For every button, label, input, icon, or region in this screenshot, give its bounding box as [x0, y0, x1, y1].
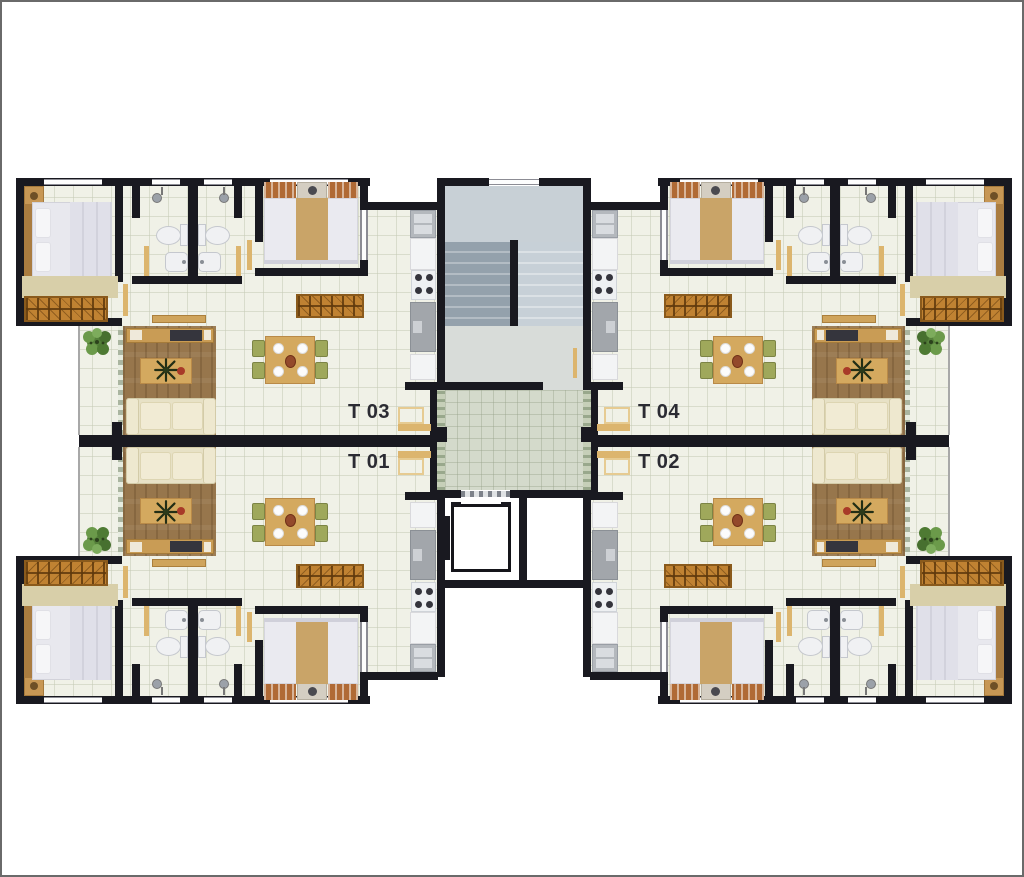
table-plant-icon — [849, 357, 875, 383]
second-bed-footline — [670, 260, 764, 264]
master-bedroom-wall-right — [905, 178, 913, 282]
unit-label-t04: T 04 — [638, 401, 680, 424]
bathroom-wall-right — [234, 664, 242, 704]
window-bathroom-left — [848, 697, 876, 703]
table-plant-icon — [153, 499, 179, 525]
pillow — [35, 242, 51, 272]
second-bedroom-wall-bottom — [255, 606, 367, 614]
bedroom-rug — [22, 276, 118, 298]
service-shaft — [527, 498, 583, 580]
bathroom-wall-bottom — [132, 598, 242, 606]
lamp — [30, 192, 38, 200]
dining-chair — [763, 503, 776, 520]
kitchen-counter — [410, 502, 436, 528]
exterior-notch-top — [366, 678, 442, 708]
faucet — [824, 260, 828, 264]
exterior-notch-left — [949, 325, 1014, 441]
second-bedroom-wall-left — [255, 640, 263, 704]
master-bedroom-door — [123, 284, 128, 316]
window-master-bedroom — [44, 179, 102, 185]
bathroom-wall-left — [132, 178, 140, 218]
plate — [744, 528, 755, 539]
bathroom-wall-bottom — [132, 276, 242, 284]
bathroom-left-door — [144, 246, 149, 276]
outer-wall-left — [1004, 178, 1012, 326]
second-bedroom-wall-bottom — [661, 606, 773, 614]
window-master-bedroom — [926, 179, 984, 185]
stair-flight-down — [518, 242, 583, 326]
dining-chair — [763, 525, 776, 542]
lamp — [990, 192, 998, 200]
faucet — [200, 618, 204, 622]
second-bedroom-door — [247, 240, 252, 270]
unit-label-t02: T 02 — [638, 451, 680, 474]
master-wardrobe — [24, 296, 108, 322]
unit-label-t03: T 03 — [348, 401, 390, 424]
kitchen-counter — [592, 612, 618, 644]
burner — [606, 588, 613, 595]
plate — [273, 528, 284, 539]
decor-item — [177, 507, 185, 515]
toilet-bowl — [205, 226, 230, 245]
sofa-arm — [126, 398, 139, 435]
sink-basin — [414, 659, 432, 668]
second-bed-runner — [700, 198, 732, 264]
floor-plan-image: T 03 T 01 T 04 T 02 — [0, 0, 1024, 877]
sink-basin — [596, 659, 614, 668]
rack-item — [204, 542, 211, 552]
exterior-notch-left — [14, 441, 79, 557]
toilet-tank — [180, 224, 188, 246]
shower-arm — [803, 187, 805, 195]
plate — [297, 528, 308, 539]
burner — [606, 601, 613, 608]
second-bedroom-wall-right-bottom — [360, 260, 368, 276]
second-bed-runner — [700, 618, 732, 684]
kitchen-wall-bottom — [405, 492, 438, 500]
kitchen-counter — [592, 502, 618, 528]
kitchen-counter — [410, 354, 436, 380]
party-wall-stub-right — [581, 427, 591, 442]
sofa-arm — [889, 398, 902, 435]
exterior-notch-top — [366, 174, 442, 204]
entry-door — [597, 424, 630, 431]
stair-center-wall — [510, 240, 518, 328]
window-second-bedroom-side — [660, 210, 668, 260]
shower-arm — [223, 687, 225, 695]
toilet-bowl — [847, 637, 872, 656]
toilet-tank — [822, 636, 830, 658]
dining-chair — [700, 525, 713, 542]
sofa-arm — [812, 447, 825, 484]
shower-arm — [803, 687, 805, 695]
bathroom-left-door — [879, 246, 884, 276]
elevator-car-door-tick — [451, 502, 461, 506]
window-second-bedroom-side — [360, 210, 368, 260]
second-bed-footline — [670, 618, 764, 622]
centerpiece-bowl — [732, 355, 743, 368]
burner — [606, 274, 613, 281]
pillow — [977, 242, 993, 272]
plate — [720, 528, 731, 539]
lamp — [990, 682, 998, 690]
bathroom-wall-right — [786, 664, 794, 704]
entry-door-frame — [604, 458, 630, 475]
table-plant-icon — [153, 357, 179, 383]
plate — [273, 366, 284, 377]
shaft-divider-wall — [519, 498, 527, 580]
elevator-wall-top-left — [437, 490, 461, 498]
burner — [606, 287, 613, 294]
bathroom-divider-wall — [188, 178, 198, 278]
bathroom-wall-right — [234, 178, 242, 218]
stair-wall-right — [583, 178, 591, 390]
balcony-sliding-door — [905, 447, 910, 557]
bathroom-wall-left — [888, 664, 896, 704]
exterior-notch-top — [586, 174, 662, 204]
party-wall-balcony-stub — [906, 422, 916, 435]
headboard-cushion — [328, 182, 358, 198]
balcony-plant-icon — [914, 523, 948, 557]
refrigerator-handle — [606, 549, 615, 561]
window-second-bedroom-side — [660, 622, 668, 672]
plate — [720, 505, 731, 516]
entry-door — [398, 451, 431, 458]
second-bedroom-wall-right-top — [660, 178, 668, 210]
bathroom-left-door — [879, 606, 884, 636]
master-bed-duvet — [916, 202, 958, 280]
master-bedroom-door — [900, 566, 905, 598]
second-bedroom-wall-bottom — [255, 268, 367, 276]
elevator-car-door-tick — [501, 502, 511, 506]
shower-arm — [865, 187, 867, 195]
hall-wardrobe — [296, 294, 364, 318]
lamp — [711, 687, 720, 696]
kitchen-counter — [410, 612, 436, 644]
headboard-cushion — [732, 182, 764, 198]
sofa-cushion — [140, 452, 171, 480]
burner — [595, 601, 602, 608]
console-table — [822, 559, 876, 567]
toilet-bowl — [205, 637, 230, 656]
elevator-wall-bottom — [437, 580, 591, 588]
window-master-bedroom — [926, 697, 984, 703]
outer-wall-left — [16, 178, 24, 326]
kitchen-counter — [592, 354, 618, 380]
pillow — [35, 644, 51, 674]
master-wardrobe — [920, 296, 1004, 322]
master-bed-headboard — [996, 204, 1004, 276]
rack-item — [886, 542, 898, 552]
rack-item — [130, 330, 142, 340]
tv — [170, 541, 202, 552]
master-bed-duvet — [70, 202, 112, 280]
sofa-cushion — [857, 402, 888, 430]
balcony-railing — [948, 325, 950, 435]
window-bathroom-left — [848, 179, 876, 185]
decor-item — [843, 507, 851, 515]
toilet-tank — [822, 224, 830, 246]
sofa-arm — [889, 447, 902, 484]
burner — [426, 588, 433, 595]
dining-chair — [315, 503, 328, 520]
headboard-cushion — [732, 684, 764, 700]
dining-chair — [315, 525, 328, 542]
window-bathroom-right — [796, 697, 824, 703]
toilet-bowl — [798, 226, 823, 245]
master-bed-headboard — [996, 606, 1004, 678]
toilet-bowl — [156, 637, 181, 656]
pillow — [977, 208, 993, 238]
kitchen-wall-bottom — [590, 382, 623, 390]
outer-wall-left — [16, 556, 24, 704]
second-bed-runner — [296, 618, 328, 684]
exterior-notch-top — [586, 678, 662, 708]
stair-exit-floor — [543, 382, 583, 390]
second-bedroom-wall-right-bottom — [660, 606, 668, 622]
lamp — [30, 682, 38, 690]
party-wall-balcony-stub — [112, 422, 122, 435]
dining-chair — [315, 362, 328, 379]
tv — [826, 541, 858, 552]
entry-door — [398, 424, 431, 431]
master-bed-duvet — [916, 602, 958, 680]
entry-door-frame — [398, 407, 424, 424]
window-bathroom-right — [204, 697, 232, 703]
stair-door — [573, 348, 577, 378]
floor-plan: T 03 T 01 T 04 T 02 — [2, 2, 1022, 875]
burner — [426, 601, 433, 608]
headboard-cushion — [670, 684, 700, 700]
stair-window — [489, 179, 539, 185]
elevator-door — [461, 491, 510, 497]
centerpiece-bowl — [285, 514, 296, 527]
burner — [426, 287, 433, 294]
party-wall-stub-left — [437, 427, 447, 442]
stair-upper-landing — [445, 186, 583, 242]
stove — [411, 582, 436, 612]
sofa-cushion — [172, 452, 203, 480]
bathroom-wall-left — [132, 664, 140, 704]
shower-arm — [161, 187, 163, 195]
hall-wardrobe — [664, 564, 732, 588]
bedroom-rug — [22, 584, 118, 606]
refrigerator-handle — [413, 549, 422, 561]
second-bedroom-door — [776, 612, 781, 642]
window-bathroom-right — [204, 179, 232, 185]
balcony-plant-icon — [914, 325, 948, 359]
console-table — [822, 315, 876, 323]
kitchen-wall-top — [590, 202, 660, 210]
faucet — [824, 618, 828, 622]
headboard-cushion — [264, 684, 296, 700]
pillow — [35, 208, 51, 238]
bathroom-divider-wall — [830, 178, 840, 278]
sink-basin — [596, 225, 614, 234]
second-bedroom-wall-left — [255, 178, 263, 242]
bathroom-divider-wall — [830, 604, 840, 704]
window-bathroom-right — [796, 179, 824, 185]
burner — [415, 588, 422, 595]
plate — [297, 366, 308, 377]
second-bedroom-wall-right-top — [360, 178, 368, 210]
plate — [720, 366, 731, 377]
dining-chair — [252, 503, 265, 520]
pillow — [977, 610, 993, 640]
apartment-unit-bottom-right — [586, 441, 1014, 708]
lamp — [711, 186, 720, 195]
faucet — [200, 260, 204, 264]
shower-arm — [223, 187, 225, 195]
kitchen-wall-top — [590, 672, 660, 680]
plate — [297, 343, 308, 354]
second-bed-footline — [264, 260, 358, 264]
burner — [415, 287, 422, 294]
balcony-plant-icon — [80, 523, 114, 557]
party-wall-balcony-stub — [906, 447, 916, 460]
second-bedroom-wall-left — [765, 640, 773, 704]
sink-basin — [596, 648, 614, 657]
master-bedroom-door — [900, 284, 905, 316]
table-plant-icon — [849, 499, 875, 525]
headboard-cushion — [670, 182, 700, 198]
sofa-arm — [812, 398, 825, 435]
toilet-tank — [180, 636, 188, 658]
faucet — [182, 618, 186, 622]
master-bedroom-wall-right — [115, 178, 123, 282]
balcony-sliding-door — [905, 325, 910, 435]
refrigerator-handle — [413, 321, 422, 333]
apartment-unit-bottom-left — [14, 441, 442, 708]
elevator-counterweight — [445, 516, 450, 560]
refrigerator-handle — [606, 321, 615, 333]
plate — [273, 343, 284, 354]
rack-item — [817, 542, 824, 552]
dining-chair — [763, 340, 776, 357]
elevator-car — [451, 504, 511, 572]
plate — [297, 505, 308, 516]
sofa-arm — [126, 447, 139, 484]
bathroom-right-door — [236, 606, 241, 636]
window-second-bedroom-side — [360, 622, 368, 672]
second-bedroom-wall-right-top — [360, 672, 368, 704]
exterior-notch-left — [949, 441, 1014, 557]
toilet-bowl — [156, 226, 181, 245]
sofa-cushion — [825, 402, 856, 430]
void-wall-left — [437, 588, 445, 677]
master-bedroom-wall-right — [115, 600, 123, 704]
void-wall-right — [583, 588, 591, 677]
faucet — [842, 260, 846, 264]
toilet-bowl — [847, 226, 872, 245]
dining-chair — [252, 362, 265, 379]
toilet-bowl — [798, 637, 823, 656]
window-master-bedroom — [44, 697, 102, 703]
second-bedroom-wall-right-bottom — [360, 606, 368, 622]
hall-floor — [445, 390, 583, 490]
plate — [744, 343, 755, 354]
plate — [720, 343, 731, 354]
party-wall-balcony-stub — [112, 447, 122, 460]
sofa-arm — [203, 447, 216, 484]
headboard-cushion — [264, 182, 296, 198]
pillow — [977, 644, 993, 674]
shower-arm — [161, 687, 163, 695]
dining-chair — [763, 362, 776, 379]
centerpiece-bowl — [732, 514, 743, 527]
rack-item — [130, 542, 142, 552]
dining-chair — [315, 340, 328, 357]
bathroom-divider-wall — [188, 604, 198, 704]
burner — [595, 287, 602, 294]
shower-head — [866, 679, 876, 689]
sink-basin — [414, 214, 432, 223]
kitchen-wall-bottom — [590, 492, 623, 500]
stair-wall-left — [437, 178, 445, 390]
bathroom-wall-bottom — [786, 598, 896, 606]
burner — [415, 274, 422, 281]
stair-wall-bottom — [437, 382, 543, 390]
lamp — [308, 186, 317, 195]
sofa-cushion — [172, 402, 203, 430]
dining-chair — [252, 340, 265, 357]
second-bedroom-wall-left — [765, 178, 773, 242]
master-bedroom-wall-right — [905, 600, 913, 704]
second-bedroom-wall-right-bottom — [660, 260, 668, 276]
burner — [426, 274, 433, 281]
plate — [273, 505, 284, 516]
entry-door-frame — [398, 458, 424, 475]
rack-item — [817, 330, 824, 340]
stair-lower-landing — [445, 326, 583, 390]
plate — [744, 366, 755, 377]
outer-wall-left — [1004, 556, 1012, 704]
master-bed-headboard — [24, 204, 32, 276]
elevator-wall-right — [583, 498, 591, 580]
shower-arm — [865, 687, 867, 695]
kitchen-wall-bottom — [405, 382, 438, 390]
pillow — [35, 610, 51, 640]
sofa-cushion — [825, 452, 856, 480]
sofa-arm — [203, 398, 216, 435]
entry-door — [597, 451, 630, 458]
second-bedroom-door — [776, 240, 781, 270]
centerpiece-bowl — [285, 355, 296, 368]
bathroom-wall-right — [786, 178, 794, 218]
bathroom-right-door — [787, 246, 792, 276]
faucet — [842, 618, 846, 622]
console-table — [152, 559, 206, 567]
rack-item — [204, 330, 211, 340]
shower-head — [866, 193, 876, 203]
central-core — [437, 174, 591, 708]
burner — [415, 601, 422, 608]
sink-basin — [596, 214, 614, 223]
sofa-cushion — [857, 452, 888, 480]
window-bathroom-left — [152, 179, 180, 185]
second-bed-runner — [296, 198, 328, 264]
kitchen-wall-top — [368, 672, 438, 680]
sink-basin — [414, 648, 432, 657]
rack-item — [886, 330, 898, 340]
exterior-notch-left — [14, 325, 79, 441]
sofa-cushion — [140, 402, 171, 430]
bathroom-right-door — [236, 246, 241, 276]
second-bed-footline — [264, 618, 358, 622]
master-wardrobe — [24, 560, 108, 586]
master-bed-headboard — [24, 606, 32, 678]
balcony-railing — [948, 447, 950, 557]
